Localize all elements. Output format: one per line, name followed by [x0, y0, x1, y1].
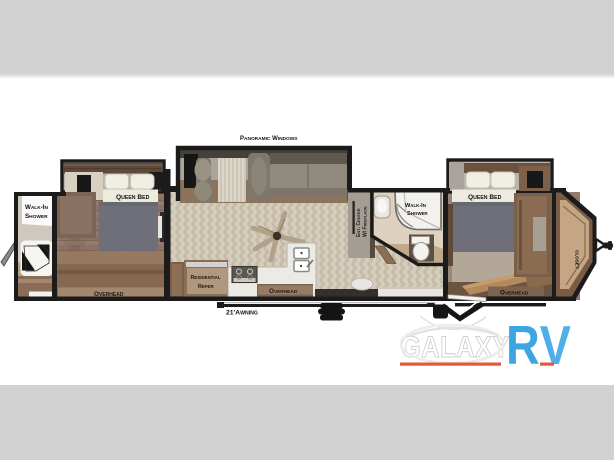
- svg-text:OVERHEAD: OVERHEAD: [500, 290, 529, 297]
- svg-text:WALK-IN: WALK-IN: [25, 204, 48, 211]
- svg-text:QUEEN BED: QUEEN BED: [116, 194, 150, 201]
- svg-text:21'AWNING: 21'AWNING: [226, 310, 258, 317]
- svg-text:PANORAMIC WINDOWS: PANORAMIC WINDOWS: [240, 136, 298, 142]
- svg-text:OVERHEAD: OVERHEAD: [269, 288, 298, 295]
- svg-text:QUEEN BED: QUEEN BED: [468, 194, 502, 201]
- svg-text:CLOSET: CLOSET: [575, 250, 580, 269]
- svg-text:RV: RV: [506, 314, 571, 375]
- svg-text:SHOWER: SHOWER: [25, 213, 48, 220]
